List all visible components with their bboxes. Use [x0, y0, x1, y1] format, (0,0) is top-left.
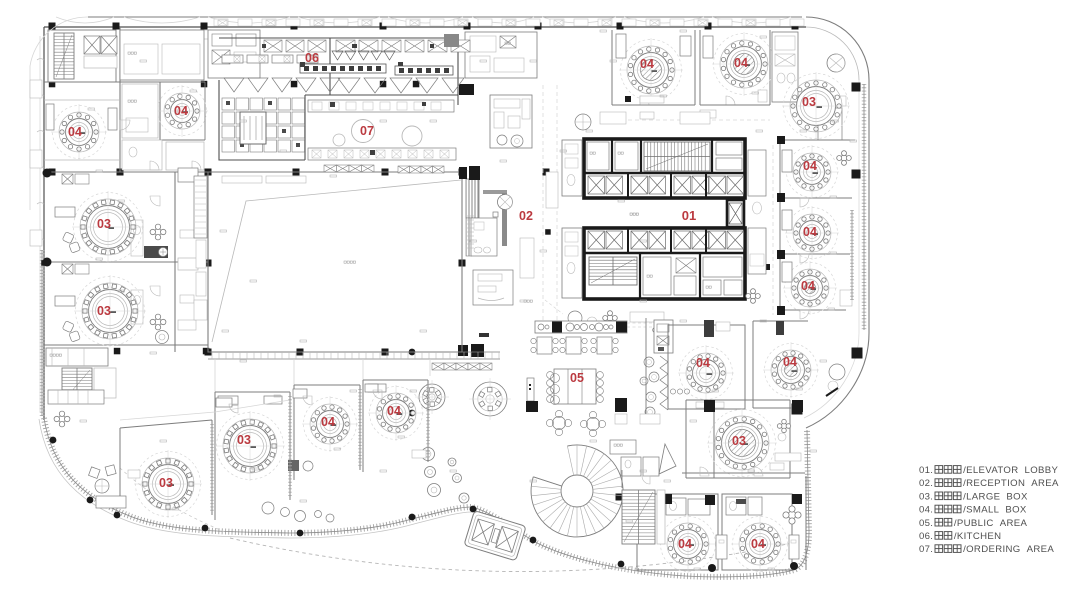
- svg-text:05.: 05.: [919, 518, 933, 529]
- svg-text:04: 04: [803, 225, 817, 239]
- svg-text:03: 03: [97, 304, 111, 318]
- svg-text:03: 03: [732, 434, 746, 448]
- svg-text:/ELEVATOR LOBBY: /ELEVATOR LOBBY: [963, 465, 1058, 476]
- svg-text:04: 04: [387, 404, 401, 418]
- svg-text:01: 01: [682, 208, 696, 223]
- svg-text:03: 03: [159, 476, 173, 490]
- svg-text:04: 04: [803, 159, 817, 173]
- svg-text:04: 04: [751, 537, 765, 551]
- svg-text:07.: 07.: [919, 544, 933, 555]
- svg-text:04: 04: [801, 279, 815, 293]
- svg-text:/SMALL BOX: /SMALL BOX: [963, 505, 1027, 516]
- svg-text:07: 07: [360, 124, 374, 138]
- svg-text:04: 04: [678, 537, 692, 551]
- svg-text:/RECEPTION AREA: /RECEPTION AREA: [963, 478, 1059, 489]
- svg-text:04: 04: [321, 415, 335, 429]
- svg-text:04.: 04.: [919, 505, 933, 516]
- svg-text:06: 06: [305, 51, 319, 65]
- svg-text:/ORDERING AREA: /ORDERING AREA: [963, 544, 1054, 555]
- svg-text:04: 04: [734, 56, 748, 70]
- svg-text:05: 05: [570, 371, 584, 385]
- svg-text:01.: 01.: [919, 465, 933, 476]
- svg-text:03.: 03.: [919, 491, 933, 502]
- svg-text:04: 04: [640, 57, 654, 71]
- svg-text:02.: 02.: [919, 478, 933, 489]
- svg-text:/LARGE BOX: /LARGE BOX: [963, 491, 1028, 502]
- svg-text:06.: 06.: [919, 531, 933, 542]
- svg-text:/PUBLIC AREA: /PUBLIC AREA: [954, 518, 1028, 529]
- svg-text:03: 03: [97, 217, 111, 231]
- svg-text:04: 04: [174, 104, 188, 118]
- svg-text:03: 03: [237, 433, 251, 447]
- svg-text:03: 03: [802, 95, 816, 109]
- svg-text:04: 04: [696, 356, 710, 370]
- svg-text:/KITCHEN: /KITCHEN: [954, 531, 1002, 542]
- svg-text:02: 02: [519, 209, 533, 223]
- svg-text:04: 04: [68, 125, 82, 139]
- svg-text:04: 04: [783, 355, 797, 369]
